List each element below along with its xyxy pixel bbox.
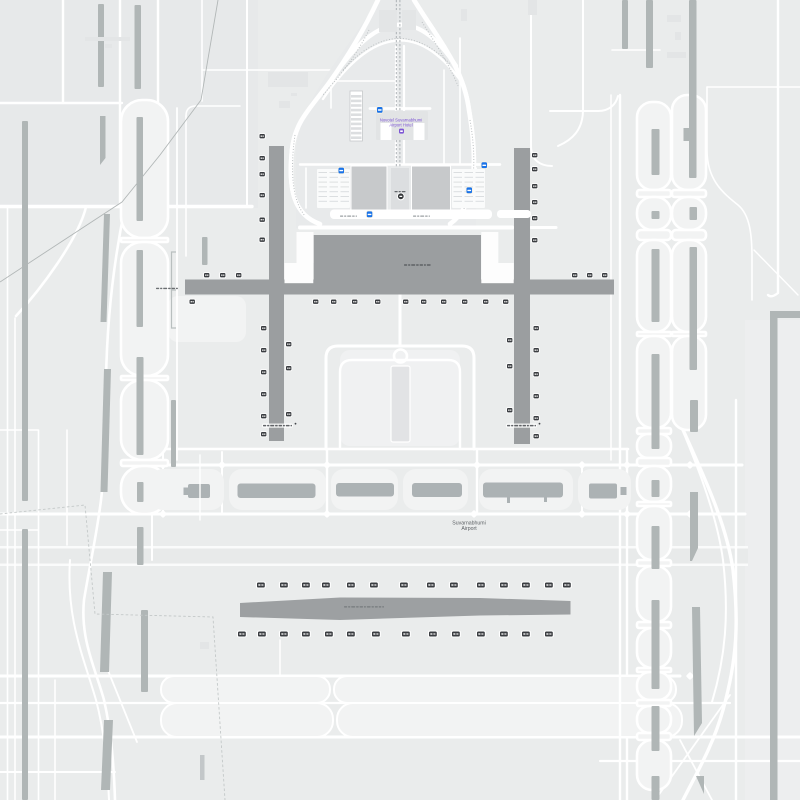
svg-text:Airport Hotel: Airport Hotel: [389, 123, 412, 128]
svg-text:Airport: Airport: [461, 526, 477, 532]
